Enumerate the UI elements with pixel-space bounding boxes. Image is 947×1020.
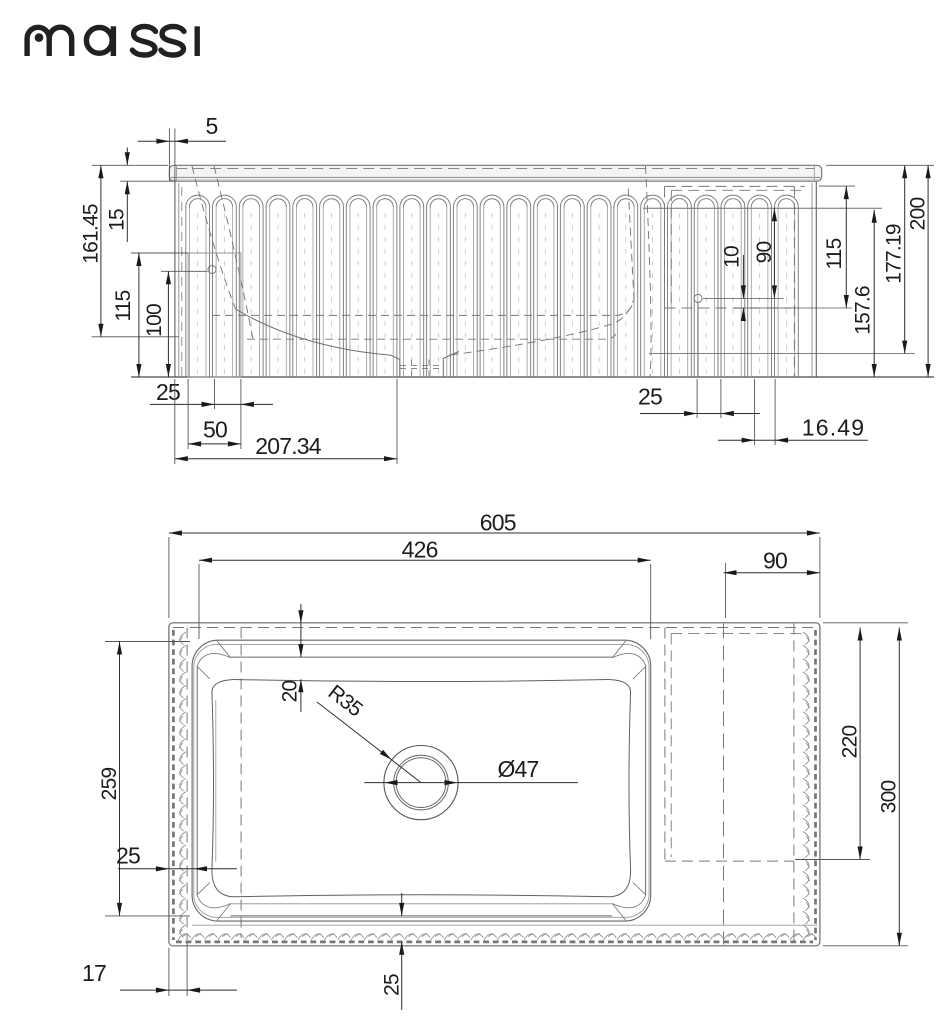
svg-text:426: 426 xyxy=(402,536,438,562)
svg-text:25: 25 xyxy=(156,379,180,405)
svg-text:25: 25 xyxy=(380,974,403,996)
svg-text:17: 17 xyxy=(82,960,106,986)
svg-text:25: 25 xyxy=(638,384,662,410)
svg-text:Ø47: Ø47 xyxy=(497,756,538,782)
svg-text:200: 200 xyxy=(906,198,929,231)
svg-text:90: 90 xyxy=(753,242,776,264)
svg-text:115: 115 xyxy=(112,290,135,321)
svg-text:50: 50 xyxy=(203,417,227,443)
svg-text:300: 300 xyxy=(878,781,901,814)
svg-text:161.45: 161.45 xyxy=(79,204,102,264)
svg-text:177.19: 177.19 xyxy=(882,224,905,284)
svg-text:5: 5 xyxy=(206,113,218,139)
svg-text:100: 100 xyxy=(143,304,166,337)
svg-text:220: 220 xyxy=(838,726,861,759)
svg-text:90: 90 xyxy=(763,547,787,573)
svg-text:207.34: 207.34 xyxy=(255,433,322,459)
svg-text:16.49: 16.49 xyxy=(802,415,866,441)
svg-text:20: 20 xyxy=(279,681,302,703)
svg-text:259: 259 xyxy=(98,768,121,801)
svg-text:25: 25 xyxy=(116,843,140,869)
svg-text:605: 605 xyxy=(480,509,516,535)
svg-text:15: 15 xyxy=(106,209,129,231)
svg-text:115: 115 xyxy=(823,238,846,269)
svg-text:157.6: 157.6 xyxy=(852,286,875,335)
svg-text:10: 10 xyxy=(721,246,744,268)
